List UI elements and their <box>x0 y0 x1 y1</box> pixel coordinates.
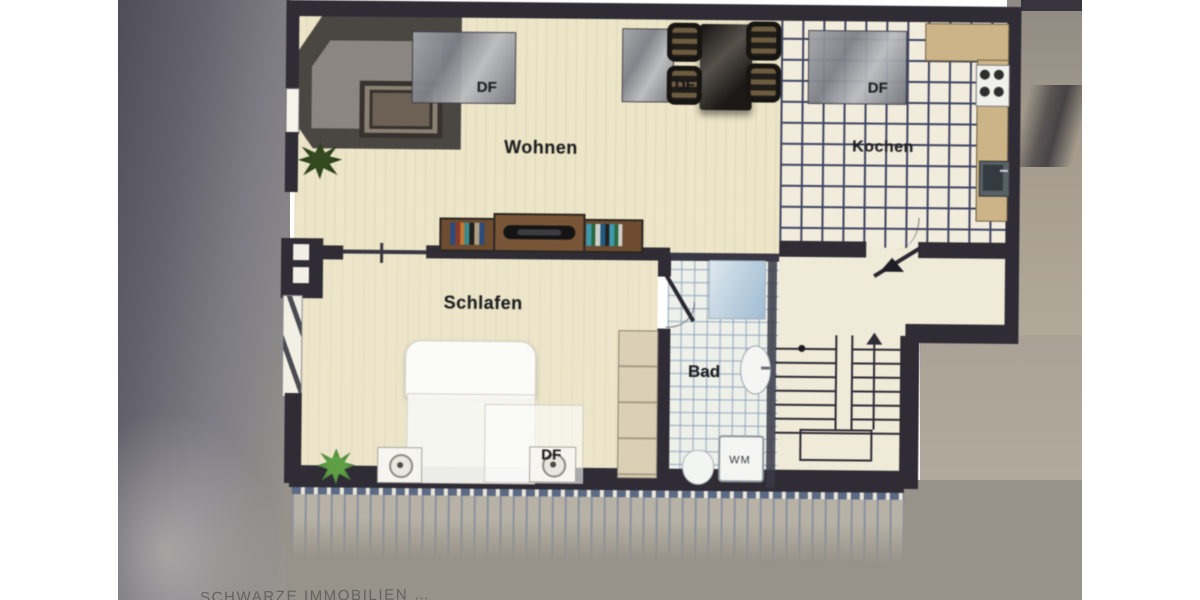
stairs-stringer <box>834 335 853 431</box>
burner-icon <box>980 70 990 80</box>
dining-table <box>700 24 753 110</box>
bed-headboard <box>405 340 537 399</box>
shower-icon <box>709 260 767 320</box>
roof-hatch-lines <box>291 494 904 566</box>
burner-icon <box>994 70 1004 80</box>
faucet-icon <box>1000 170 1008 172</box>
toilet-icon <box>682 450 714 485</box>
chair-slats <box>751 26 776 55</box>
kitchen-label: Kochen <box>852 138 914 157</box>
bathroom-label: Bad <box>688 362 720 382</box>
floorplan-photo: Wohnen Kochen Schlafen Bad DF DF DF DF W… <box>0 0 1200 600</box>
chimney-flue-1 <box>293 244 309 260</box>
window-left-living <box>285 88 299 134</box>
page-edge-left <box>0 0 118 600</box>
stairs-landing <box>799 429 872 462</box>
washing-machine-label: WM <box>729 454 751 466</box>
wall-thin-bedroom <box>343 250 426 255</box>
kitchen-counter-top <box>925 23 1009 62</box>
basin-faucet-icon <box>761 367 770 370</box>
entrance-arrow-icon <box>880 258 904 272</box>
burner-icon <box>994 87 1004 97</box>
wall-kitchen-bottom-left <box>779 241 866 258</box>
chimney-arm <box>323 245 343 259</box>
books-left-icon <box>450 223 484 245</box>
page-edge-right <box>1082 0 1200 600</box>
chair-slats <box>751 68 776 97</box>
wall-left-top <box>286 0 300 88</box>
stairs-arrow-head-icon <box>866 333 882 345</box>
dining-chair <box>667 23 702 62</box>
chimney-block <box>281 238 324 298</box>
dining-chair <box>746 21 781 60</box>
wall-tick-mark <box>380 243 383 263</box>
skylight-kitchen-label: DF <box>868 80 888 97</box>
skylight-kitchen <box>808 30 908 105</box>
chimney-flue-2 <box>293 267 309 283</box>
kitchen-sink-icon <box>979 161 1010 197</box>
burner-icon <box>980 87 990 97</box>
living-room-label: Wohnen <box>504 137 578 159</box>
stove-icon <box>976 65 1010 107</box>
floorplan: Wohnen Kochen Schlafen Bad DF DF DF DF W… <box>0 0 1200 600</box>
wall-kitchen-bottom-right <box>918 242 1006 259</box>
lamp-center <box>397 462 403 468</box>
bedroom-label: Schlafen <box>444 292 523 314</box>
nightstand-left <box>377 447 422 483</box>
skylight-living-label: DF <box>477 79 497 96</box>
tv-icon <box>503 225 575 240</box>
tv-screen <box>517 229 561 235</box>
skylight-living <box>412 31 517 104</box>
wall-left-bottom <box>284 393 302 483</box>
chair-slats <box>672 28 697 57</box>
wardrobe <box>617 330 658 478</box>
dining-chair <box>746 63 781 102</box>
kitchen-sink-basin <box>983 165 1003 191</box>
stairs-newel-dot <box>798 345 805 352</box>
books-right-icon <box>586 224 622 246</box>
wall-hall-bottom <box>905 324 1018 344</box>
skylight-bedroom-label: DF <box>541 446 561 463</box>
window-left-bedroom <box>282 295 303 397</box>
wall-bath-left-upper <box>658 256 671 277</box>
wall-left-mid <box>285 132 299 192</box>
skylight-dining-label: DF <box>675 77 695 94</box>
